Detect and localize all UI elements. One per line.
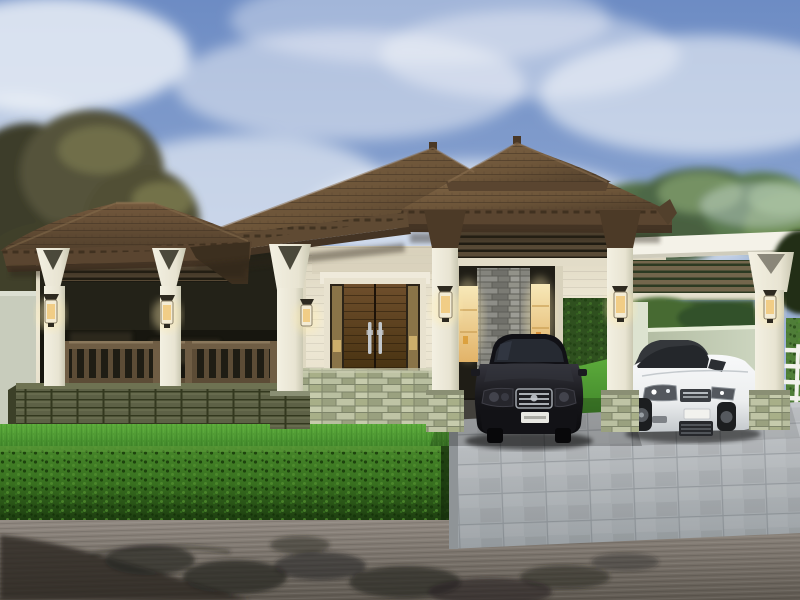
coupe-plate <box>684 409 710 419</box>
architectural-render-photo <box>0 0 800 600</box>
scene-canvas <box>0 0 800 600</box>
coupe-grille <box>680 389 711 402</box>
front-hedge <box>0 446 449 520</box>
roof-finial-right <box>513 136 521 144</box>
sidelight-right <box>408 286 418 376</box>
sedan-wheel-left <box>487 428 503 443</box>
porch-base-stone <box>8 383 302 429</box>
feature-window <box>320 272 430 380</box>
sedan-mirror-right <box>578 369 587 376</box>
sedan-grille <box>516 389 552 408</box>
sedan-mirror-left <box>471 369 480 376</box>
sidelight-left <box>332 286 342 376</box>
sedan-wheel-right <box>555 428 571 443</box>
